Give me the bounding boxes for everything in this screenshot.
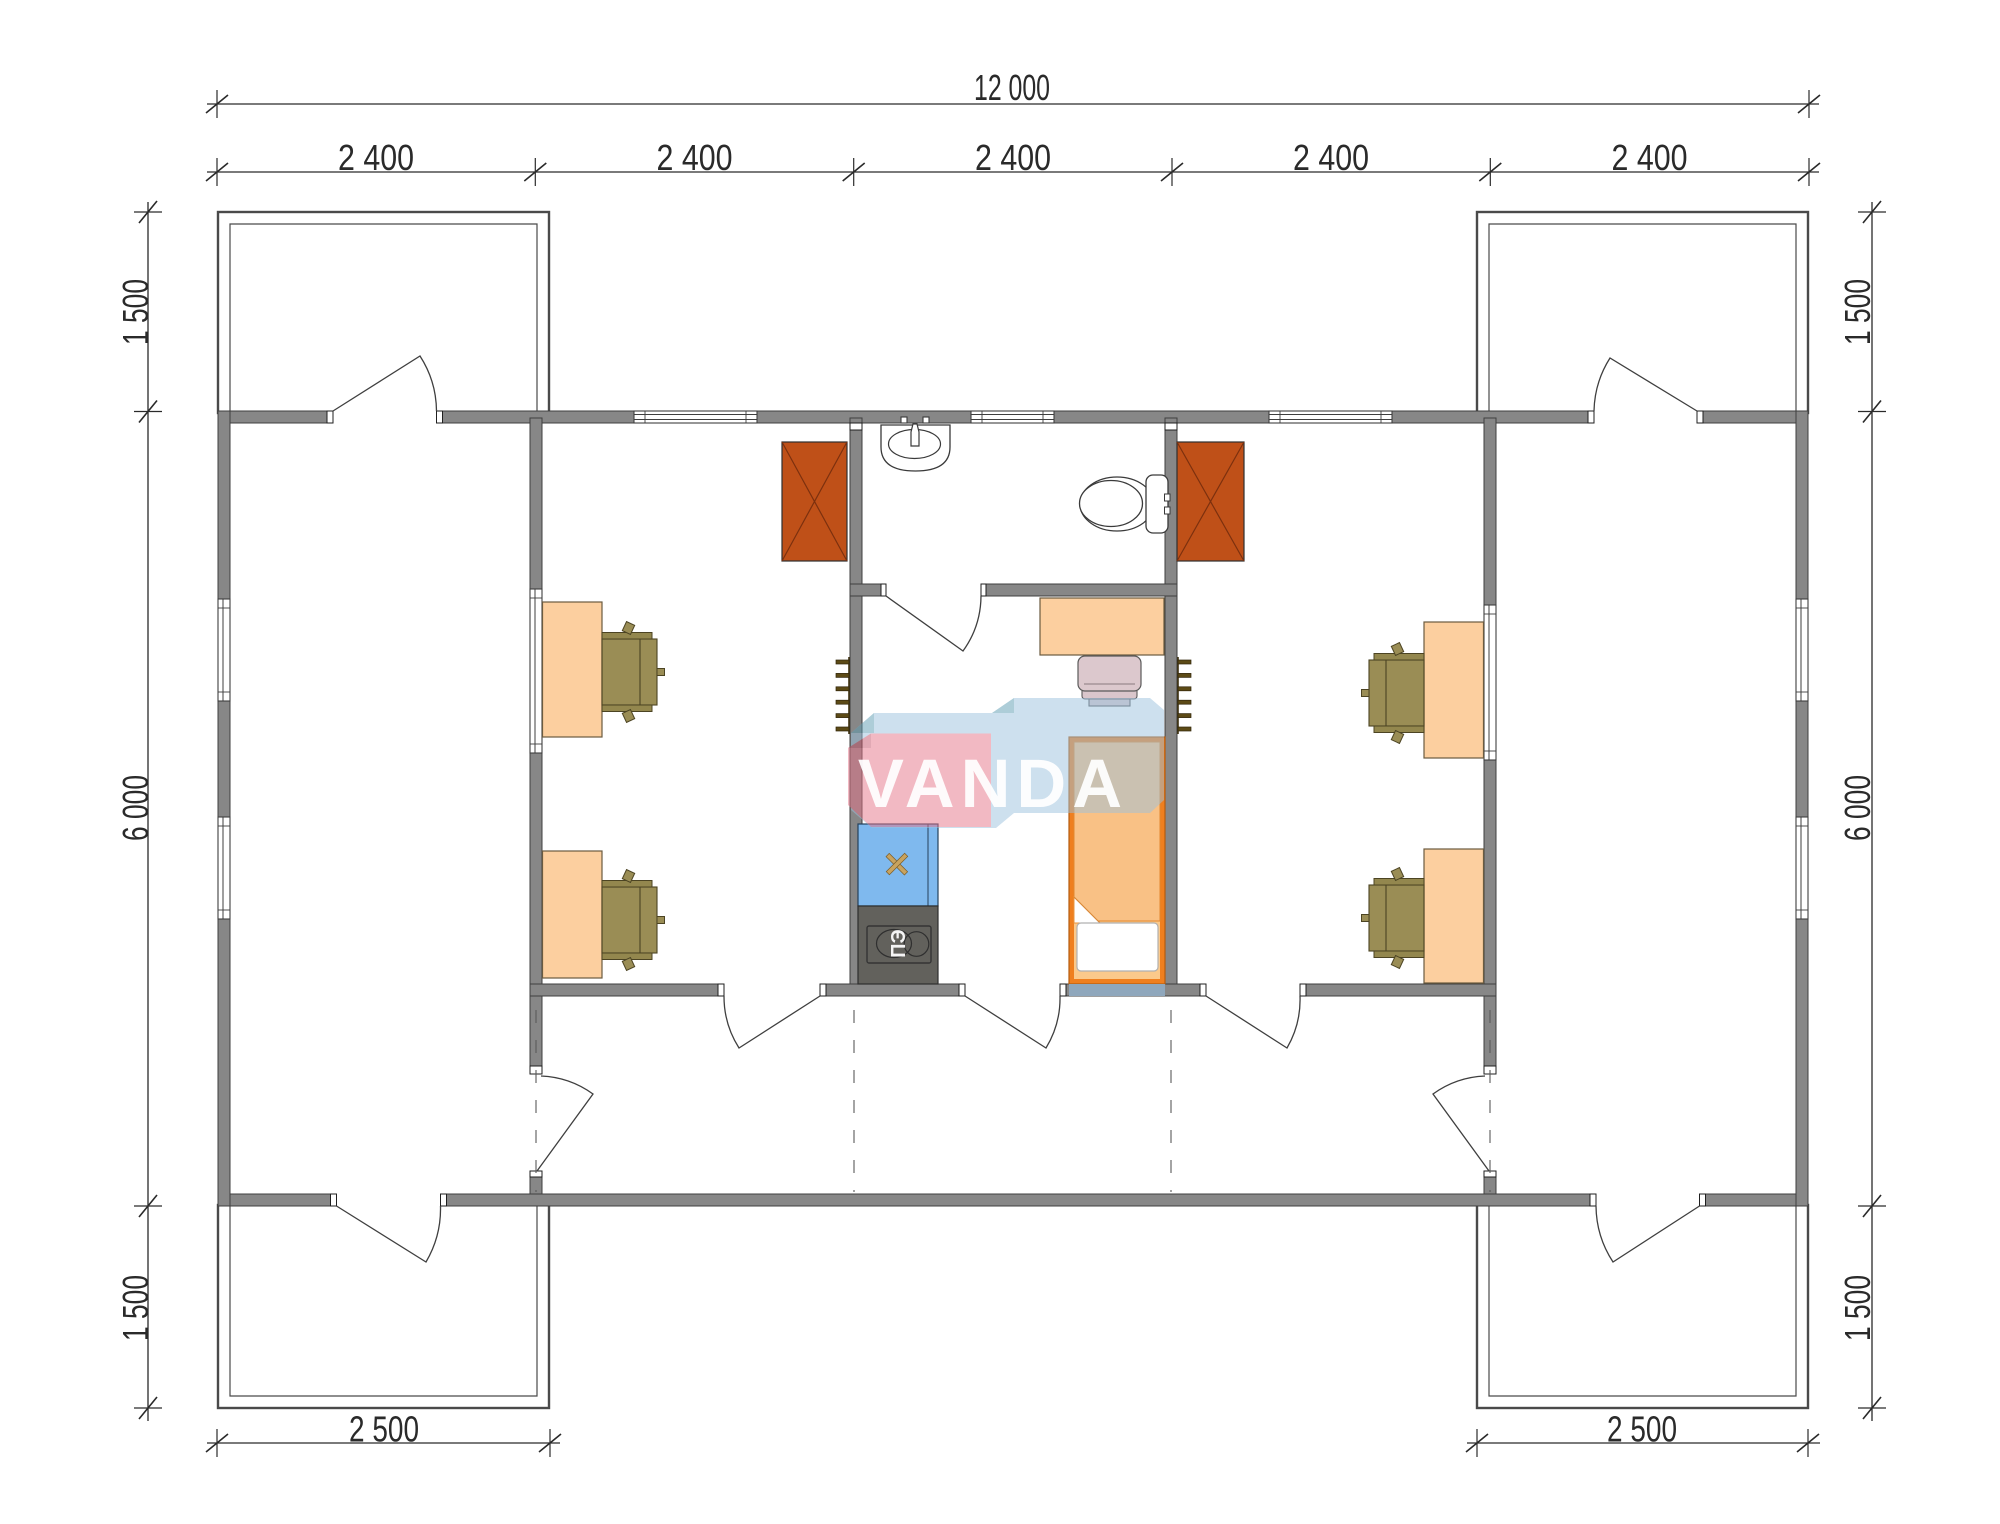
svg-text:1 500: 1 500 <box>115 1275 156 1341</box>
svg-text:6 000: 6 000 <box>115 775 156 841</box>
svg-text:6 000: 6 000 <box>1837 775 1878 841</box>
svg-text:1 500: 1 500 <box>1837 1275 1878 1341</box>
svg-text:1 500: 1 500 <box>1837 279 1878 345</box>
svg-text:2 400: 2 400 <box>1612 137 1688 178</box>
svg-text:12 000: 12 000 <box>974 67 1050 108</box>
svg-text:2 500: 2 500 <box>349 1409 419 1450</box>
svg-text:2 400: 2 400 <box>975 137 1051 178</box>
svg-text:2 400: 2 400 <box>1293 137 1369 178</box>
svg-text:ПЭ: ПЭ <box>888 929 910 958</box>
svg-text:2 400: 2 400 <box>338 137 414 178</box>
svg-text:VANDA: VANDA <box>858 745 1128 822</box>
svg-text:2 400: 2 400 <box>657 137 733 178</box>
svg-text:1 500: 1 500 <box>115 279 156 345</box>
svg-text:2 500: 2 500 <box>1607 1409 1677 1450</box>
